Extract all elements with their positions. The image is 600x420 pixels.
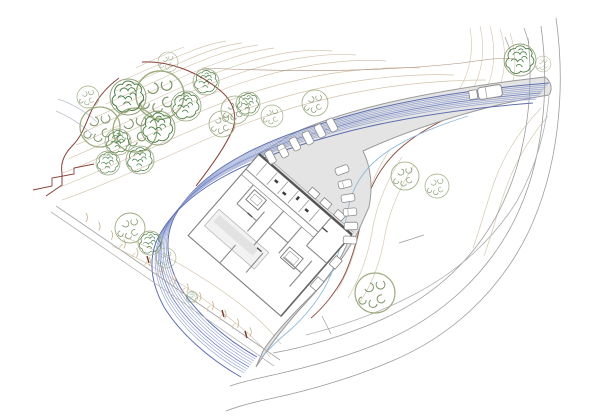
site-plan-canvas bbox=[0, 0, 600, 420]
boundary-grass-tick-row2 bbox=[120, 244, 123, 250]
tree bbox=[355, 273, 395, 313]
contour-line bbox=[96, 48, 274, 117]
tree bbox=[221, 96, 249, 124]
tree bbox=[80, 107, 120, 147]
tree bbox=[302, 90, 328, 116]
boundary-grass-tick bbox=[124, 239, 126, 248]
tree bbox=[158, 52, 178, 72]
road-cross-tick bbox=[322, 316, 331, 334]
road-cross-tick bbox=[399, 235, 424, 243]
tree bbox=[535, 56, 551, 72]
parking-stall bbox=[344, 222, 358, 230]
tree bbox=[425, 174, 449, 198]
boundary-grass-tick bbox=[237, 319, 239, 328]
boundary-grass-tick bbox=[111, 231, 113, 240]
tree bbox=[115, 213, 145, 243]
tree bbox=[171, 91, 201, 121]
tree bbox=[261, 105, 283, 127]
car-trailer bbox=[469, 90, 478, 100]
contour-line-entrance-fan bbox=[471, 26, 483, 92]
tree bbox=[77, 86, 99, 108]
boundary-grass-tick bbox=[136, 248, 138, 257]
boundary-grass-tick bbox=[99, 222, 101, 231]
tree bbox=[126, 146, 154, 174]
road-cross-tick bbox=[524, 28, 529, 43]
site-plan-svg bbox=[0, 0, 600, 420]
contour-line-east bbox=[484, 116, 548, 256]
boundary-grass-tick bbox=[86, 213, 88, 222]
tree bbox=[156, 248, 176, 268]
shrub bbox=[186, 291, 198, 303]
parking-stall bbox=[343, 208, 357, 217]
parking-stall bbox=[343, 236, 357, 244]
parking-stall bbox=[341, 193, 356, 203]
tree bbox=[391, 162, 419, 190]
tree bbox=[141, 111, 175, 145]
contour-line bbox=[86, 50, 332, 131]
tree bbox=[504, 44, 536, 76]
tree bbox=[105, 129, 131, 155]
survey-marker-red bbox=[222, 310, 224, 317]
contour-line bbox=[126, 41, 226, 79]
